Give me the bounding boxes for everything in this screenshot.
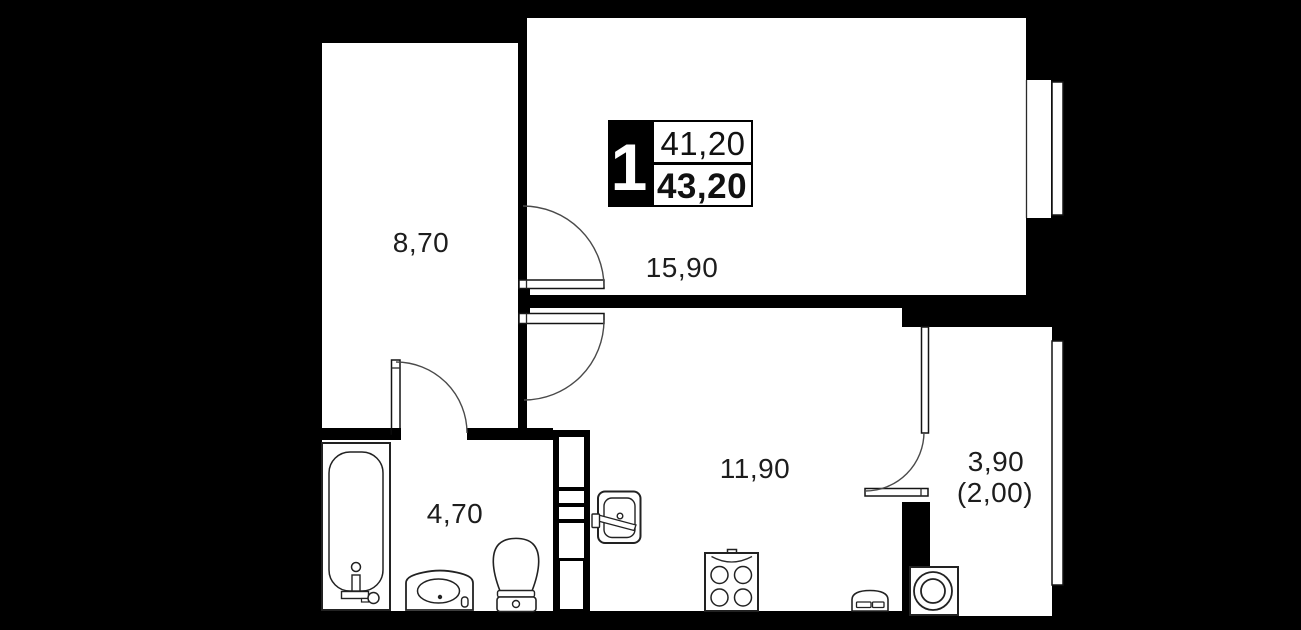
- radiator-slot: [857, 602, 872, 608]
- vanity-sink-icon: [406, 571, 473, 610]
- label-kitchen: 11,90: [720, 453, 791, 484]
- washer-door-inner: [921, 579, 945, 603]
- badge-area-living: 41,20: [660, 125, 745, 162]
- label-balcony: 3,90: [968, 446, 1025, 477]
- wall-door-pier: [518, 287, 530, 317]
- bathtub-drain: [352, 563, 361, 572]
- wall-bathroom-top-right: [467, 428, 553, 440]
- stove-burner: [711, 567, 728, 584]
- washing-machine-icon: [910, 567, 958, 615]
- sink-drain: [617, 513, 623, 519]
- living-window-niche: [1026, 80, 1051, 218]
- vent-cell: [559, 437, 584, 487]
- sink-faucet: [592, 514, 600, 528]
- label-balcony-reduced: (2,00): [957, 477, 1033, 508]
- window-icon-kitchen-balcony: [922, 327, 929, 433]
- label-bathroom: 4,70: [427, 498, 484, 529]
- vanity-basin: [418, 579, 460, 603]
- stove-icon: [705, 550, 758, 612]
- wall-kitchen-balcony: [902, 502, 930, 567]
- toilet-button: [513, 601, 520, 608]
- badge-rooms-count: 1: [611, 130, 648, 204]
- floor-plan-canvas: 1 41,20 43,20 8,70 15,90 11,90 4,70 3,90…: [0, 0, 1301, 630]
- stove-burner: [735, 589, 752, 606]
- door-leaf-bathroom: [392, 360, 401, 434]
- vent-cell: [559, 523, 584, 558]
- toilet-bowl: [493, 538, 538, 591]
- radiator-slot: [873, 602, 885, 608]
- wall-balcony-top: [902, 295, 1070, 327]
- bathtub-icon: [322, 443, 390, 610]
- vanity-drain: [438, 595, 442, 599]
- door-hinge-block: [392, 428, 402, 440]
- bathtub-tap-stem: [352, 575, 360, 591]
- door-leaf-living: [519, 280, 604, 289]
- door-leaf-kitchen: [519, 314, 604, 324]
- toilet-icon: [493, 538, 538, 611]
- stove-burner: [735, 567, 752, 584]
- room-living: [527, 18, 1026, 297]
- wall-hallway-living: [518, 43, 527, 203]
- wall-living-kitchen: [523, 295, 902, 308]
- label-hallway: 8,70: [393, 227, 450, 258]
- bathtub-tap-knob: [368, 593, 379, 604]
- badge-area-total: 43,20: [657, 167, 747, 206]
- radiator-icon: [852, 591, 888, 612]
- bathroom-door-opening: [397, 428, 467, 440]
- vent-cell: [559, 507, 584, 519]
- floor-plan: 1 41,20 43,20 8,70 15,90 11,90 4,70 3,90…: [0, 0, 1301, 630]
- vent-shaft-icon: [559, 437, 584, 609]
- wall-kitchen-balcony-lower: [902, 567, 910, 616]
- area-badge: 1 41,20 43,20: [608, 120, 753, 207]
- label-living: 15,90: [646, 252, 719, 283]
- toilet-seat-bar: [498, 591, 535, 598]
- vanity-tap: [462, 597, 469, 607]
- window-icon-balcony: [1052, 341, 1063, 585]
- window-icon-living: [1052, 82, 1063, 215]
- vent-cell: [560, 561, 583, 609]
- bathtub-tap-bar: [342, 592, 369, 599]
- wall-bathroom-top-left: [318, 428, 397, 440]
- kitchen-sink-icon: [592, 492, 641, 544]
- stove-burner: [711, 589, 728, 606]
- vent-cell: [559, 491, 584, 503]
